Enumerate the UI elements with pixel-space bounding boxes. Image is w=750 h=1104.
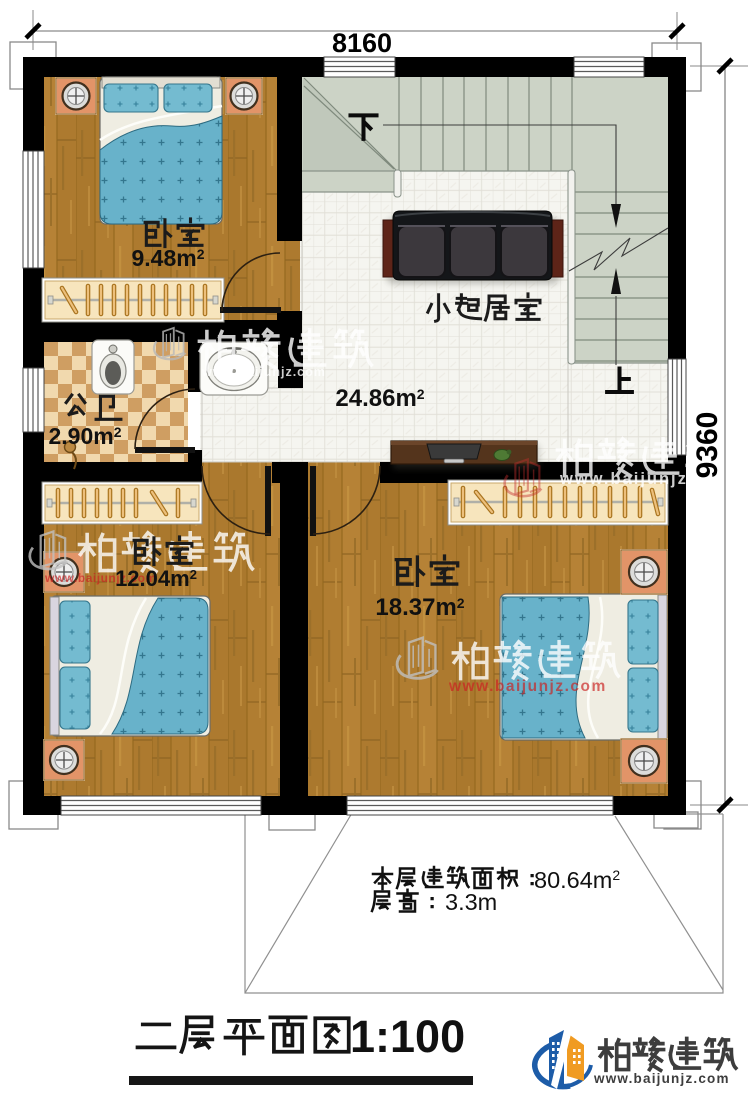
svg-text:www.baijunjz.com: www.baijunjz.com	[201, 365, 326, 379]
svg-text:9360: 9360	[691, 412, 724, 479]
svg-text:www.baijunjz.com: www.baijunjz.com	[448, 678, 607, 695]
svg-text:3.3m: 3.3m	[445, 889, 497, 915]
svg-text:18.37m2: 18.37m2	[375, 594, 464, 621]
svg-text:1:100: 1:100	[350, 1011, 465, 1062]
svg-text:8160: 8160	[332, 28, 392, 58]
svg-text:9.48m2: 9.48m2	[131, 245, 204, 271]
svg-text:www.baijunjz.com: www.baijunjz.com	[593, 1071, 730, 1086]
svg-text:12.04m2: 12.04m2	[115, 566, 197, 591]
svg-text:24.86m2: 24.86m2	[335, 385, 424, 412]
svg-text:2.90m2: 2.90m2	[48, 423, 121, 449]
svg-text:80.64m2: 80.64m2	[534, 867, 620, 893]
